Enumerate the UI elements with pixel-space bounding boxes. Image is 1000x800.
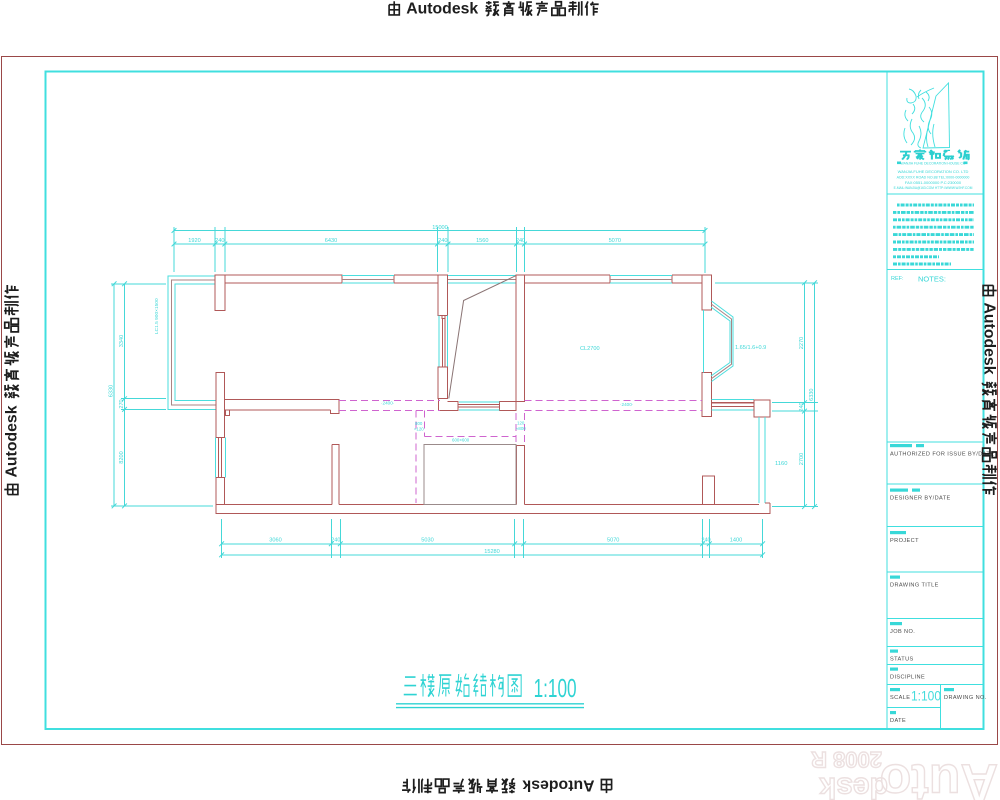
svg-text:8200: 8200 (119, 451, 125, 463)
svg-text:240: 240 (331, 538, 340, 544)
svg-text:6330: 6330 (809, 388, 815, 400)
svg-text:·2400·: ·2400· (620, 402, 633, 407)
svg-text:STATUS: STATUS (890, 657, 914, 663)
svg-text:LC1.5 900×1500: LC1.5 900×1500 (154, 298, 160, 334)
svg-text:DISCIPLINE: DISCIPLINE (890, 675, 925, 681)
svg-text:AUTHORIZED FOR ISSUE BY/DAT: AUTHORIZED FOR ISSUE BY/DATE (890, 452, 994, 458)
svg-text:FAX:0551-0000000 P.C:230000: FAX:0551-0000000 P.C:230000 (905, 180, 962, 185)
svg-text:1:100: 1:100 (534, 673, 577, 703)
svg-text:120: 120 (517, 421, 525, 426)
svg-text:CL2700: CL2700 (580, 346, 600, 352)
svg-text:1560: 1560 (476, 238, 488, 244)
svg-text:desk: desk (819, 771, 888, 800)
svg-text:15280: 15280 (484, 549, 500, 555)
svg-text:6330: 6330 (109, 385, 115, 397)
svg-text:ADD:XXXX ROAD NO.88 TEL:0000-: ADD:XXXX ROAD NO.88 TEL:0000-0000000 (897, 175, 970, 179)
svg-text:WANJIA FUHE DECORATION HOUSE C: WANJIA FUHE DECORATION HOUSE CO (901, 161, 966, 165)
svg-text:REF:: REF: (891, 276, 904, 282)
svg-text:Auto: Auto (880, 753, 998, 800)
svg-text:3340: 3340 (119, 335, 125, 347)
svg-text:E-MAIL:WANJIA@163.COM HTTP://W: E-MAIL:WANJIA@163.COM HTTP://WWW.WJHF.CO… (894, 186, 973, 190)
svg-text:2700: 2700 (799, 453, 805, 465)
svg-text:1:100: 1:100 (911, 688, 941, 704)
svg-text:DRAWING NO.: DRAWING NO. (944, 695, 987, 701)
svg-text:1400: 1400 (730, 538, 742, 544)
svg-text:1.65/1.6+0.9: 1.65/1.6+0.9 (735, 345, 766, 351)
svg-text:240: 240 (215, 238, 224, 244)
svg-text:WANJIA FUHE DECORATION CO. LTD: WANJIA FUHE DECORATION CO. LTD (898, 169, 969, 174)
svg-text:1920: 1920 (188, 238, 200, 244)
svg-text:240: 240 (799, 402, 805, 411)
svg-text:5030: 5030 (421, 538, 433, 544)
svg-text:≈800: ≈800 (516, 426, 526, 431)
svg-text:240: 240 (516, 238, 525, 244)
svg-text:270: 270 (119, 399, 125, 408)
svg-text:JOB NO.: JOB NO. (890, 629, 915, 635)
svg-text:PROJECT: PROJECT (890, 538, 919, 544)
svg-text:6430: 6430 (325, 238, 337, 244)
svg-text:240: 240 (438, 238, 447, 244)
svg-text:SCALE: SCALE (890, 695, 910, 701)
svg-text:800: 800 (415, 421, 423, 426)
svg-text:3060: 3060 (269, 538, 281, 544)
svg-text:2008 R: 2008 R (811, 747, 882, 772)
svg-text:≈120: ≈120 (414, 427, 424, 432)
svg-text:5070: 5070 (607, 538, 619, 544)
svg-text:·2400·: ·2400· (381, 401, 394, 406)
svg-text:5070: 5070 (609, 238, 621, 244)
svg-text:NOTES:: NOTES: (918, 275, 946, 284)
svg-text:600×600: 600×600 (452, 438, 470, 443)
svg-text:DATE: DATE (890, 718, 906, 724)
svg-text:DESIGNER BY/DATE: DESIGNER BY/DATE (890, 496, 951, 502)
svg-text:2270: 2270 (799, 337, 805, 349)
svg-text:DRAWING TITLE: DRAWING TITLE (890, 583, 939, 589)
svg-text:240: 240 (701, 538, 710, 544)
svg-text:15000: 15000 (432, 225, 448, 231)
svg-text:1160: 1160 (775, 461, 787, 467)
